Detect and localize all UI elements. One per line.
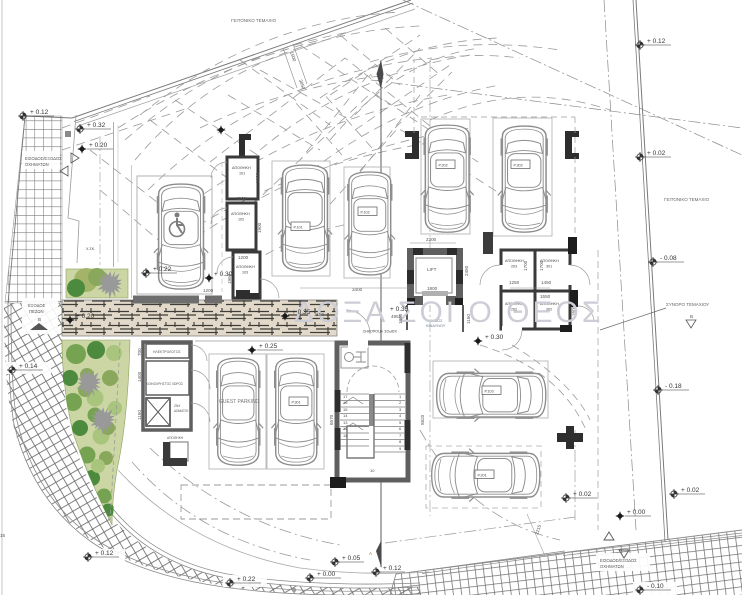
svg-text:ΔΟΞΑ ΣΟΙ Ο ΘΕΟΣ: ΔΟΞΑ ΣΟΙ Ο ΘΕΟΣ <box>294 296 603 329</box>
svg-text:+ 0.20: + 0.20 <box>76 313 95 320</box>
svg-text:- 0.18: - 0.18 <box>665 383 682 390</box>
svg-text:Χ.ΣΚ.: Χ.ΣΚ. <box>86 247 95 251</box>
svg-text:+ 0.35: + 0.35 <box>390 306 409 313</box>
svg-text:GUEST PARKING: GUEST PARKING <box>219 399 260 405</box>
svg-text:203: 203 <box>511 265 517 269</box>
svg-text:16: 16 <box>343 400 348 405</box>
svg-text:15: 15 <box>343 407 348 412</box>
svg-text:+ 0.02: + 0.02 <box>681 487 700 494</box>
svg-text:ΣΥΝΟΡΟ ΤΕΜΑΧΙΟΥ: ΣΥΝΟΡΟ ΤΕΜΑΧΙΟΥ <box>666 302 709 307</box>
svg-text:1900: 1900 <box>255 172 260 183</box>
svg-text:ΗΛΕΚΤΡΟΛΟΓΟΣ: ΗΛΕΚΤΡΟΛΟΓΟΣ <box>153 350 181 354</box>
svg-text:17: 17 <box>343 394 348 399</box>
svg-text:ΕΞΟΔΟΣ: ΕΞΟΔΟΣ <box>28 303 46 308</box>
svg-text:+ 0.12: + 0.12 <box>30 109 49 116</box>
svg-text:12: 12 <box>343 426 348 431</box>
svg-text:+ 0.02: + 0.02 <box>647 150 666 157</box>
svg-text:1200: 1200 <box>238 255 249 260</box>
svg-text:2450: 2450 <box>464 265 469 276</box>
svg-text:1400: 1400 <box>137 371 142 382</box>
svg-text:+ 0.22: + 0.22 <box>237 576 256 583</box>
svg-text:- 0.10: - 0.10 <box>647 583 664 590</box>
svg-text:1700: 1700 <box>539 260 544 271</box>
svg-text:ΟΧΗΜΑΤΩΝ: ΟΧΗΜΑΤΩΝ <box>25 162 49 167</box>
svg-text:+ 0.30: + 0.30 <box>214 271 233 278</box>
svg-text:+ 0.35: + 0.35 <box>292 309 311 316</box>
svg-text:103: 103 <box>242 271 248 275</box>
svg-text:ΑΠΟΘΗΚΗ: ΑΠΟΘΗΚΗ <box>236 265 255 269</box>
svg-text:ΑΠΟΘΗΚΗ: ΑΠΟΘΗΚΗ <box>232 166 251 170</box>
svg-text:1700: 1700 <box>523 260 528 271</box>
svg-text:1450: 1450 <box>541 280 552 285</box>
svg-text:1900: 1900 <box>257 222 262 233</box>
svg-text:P.101: P.101 <box>294 225 303 229</box>
svg-text:+ 0.30: + 0.30 <box>485 334 504 341</box>
svg-text:10: 10 <box>370 468 375 473</box>
svg-text:P.202: P.202 <box>439 163 448 167</box>
svg-text:1200: 1200 <box>236 196 247 201</box>
svg-text:ΔΩΜΑΤΙΟ: ΔΩΜΑΤΙΟ <box>174 409 189 413</box>
svg-text:102: 102 <box>238 218 244 222</box>
svg-text:1150: 1150 <box>314 312 324 317</box>
svg-text:P.102: P.102 <box>361 210 370 214</box>
svg-text:ΓΕΙΤΟΝΙΚΟ ΤΕΜΑΧΙΟ: ΓΕΙΤΟΝΙΚΟ ΤΕΜΑΧΙΟ <box>231 18 277 23</box>
svg-text:+ 0.12: + 0.12 <box>95 550 114 557</box>
svg-text:+ 0.05: + 0.05 <box>342 555 361 562</box>
svg-text:P.103: P.103 <box>485 389 494 393</box>
svg-text:ΠΕΖΩΝ: ΠΕΖΩΝ <box>29 309 44 314</box>
svg-text:ΑΠΟΘΗΚΗ: ΑΠΟΘΗΚΗ <box>231 212 250 216</box>
svg-text:6570: 6570 <box>329 414 334 425</box>
svg-text:1150: 1150 <box>137 410 142 420</box>
svg-text:ΑΠΟΘΗΚΗ: ΑΠΟΘΗΚΗ <box>167 436 184 440</box>
svg-text:ΕΙΣΟΔΟΣ/ΕΞΟΔΟΣ: ΕΙΣΟΔΟΣ/ΕΞΟΔΟΣ <box>600 558 637 563</box>
svg-text:ΖΝΧ: ΖΝΧ <box>174 404 181 408</box>
svg-text:1800: 1800 <box>427 286 438 291</box>
svg-text:13: 13 <box>343 420 348 425</box>
svg-text:+ 0.12: + 0.12 <box>647 38 666 45</box>
svg-text:ΧΩΡΟΣ ΥΠΟΔΟΧΗΣ: ΧΩΡΟΣ ΥΠΟΔΟΧΗΣ <box>362 329 397 333</box>
svg-text:P.201: P.201 <box>478 473 487 477</box>
svg-text:700: 700 <box>137 348 142 356</box>
svg-text:ΕΙΣΟΔΟΣ/ΕΞΟΔΟΣ: ΕΙΣΟΔΟΣ/ΕΞΟΔΟΣ <box>25 156 62 161</box>
svg-text:101: 101 <box>239 172 245 176</box>
svg-text:- 0.08: - 0.08 <box>660 255 677 262</box>
svg-text:+ 0.20: + 0.20 <box>89 142 108 149</box>
svg-text:1150: 1150 <box>466 314 471 324</box>
svg-text:B: B <box>690 314 693 319</box>
svg-text:P.302: P.302 <box>514 163 523 167</box>
svg-text:+ 0.25: + 0.25 <box>259 343 278 350</box>
svg-text:P.301: P.301 <box>292 400 301 404</box>
svg-text:+ 0.32: + 0.32 <box>87 122 106 129</box>
svg-text:1400: 1400 <box>398 313 403 324</box>
svg-text:+ 0.12: + 0.12 <box>383 565 402 572</box>
svg-text:+ 0.02: + 0.02 <box>573 491 592 498</box>
svg-text:5820: 5820 <box>420 414 425 425</box>
svg-text:ΟΧΗΜΑΤΩΝ: ΟΧΗΜΑΤΩΝ <box>600 564 624 569</box>
svg-text:+ 0.22: + 0.22 <box>153 266 172 273</box>
svg-text:ΓΕΙΤΟΝΙΚΟ ΤΕΜΑΧΙΟ: ΓΕΙΤΟΝΙΚΟ ΤΕΜΑΧΙΟ <box>664 197 710 202</box>
svg-text:301: 301 <box>546 265 552 269</box>
svg-text:+ 0.14: + 0.14 <box>19 363 38 370</box>
svg-text:14: 14 <box>343 413 348 418</box>
svg-text:B: B <box>38 317 41 322</box>
svg-text:+ 0.00: + 0.00 <box>317 571 336 578</box>
svg-text:ΚΟΙΝΟΧΡΗΣΤΟΣ ΧΩΡΟΣ: ΚΟΙΝΟΧΡΗΣΤΟΣ ΧΩΡΟΣ <box>146 382 183 386</box>
svg-text:LIFT: LIFT <box>427 267 437 272</box>
svg-text:15: 15 <box>0 533 6 538</box>
svg-text:1250: 1250 <box>509 280 520 285</box>
svg-text:+ 0.00: + 0.00 <box>627 509 646 516</box>
svg-text:1200: 1200 <box>203 288 214 293</box>
svg-text:2300: 2300 <box>426 237 437 242</box>
svg-text:ΑΠΟΘΗΚΗ: ΑΠΟΘΗΚΗ <box>505 259 524 263</box>
